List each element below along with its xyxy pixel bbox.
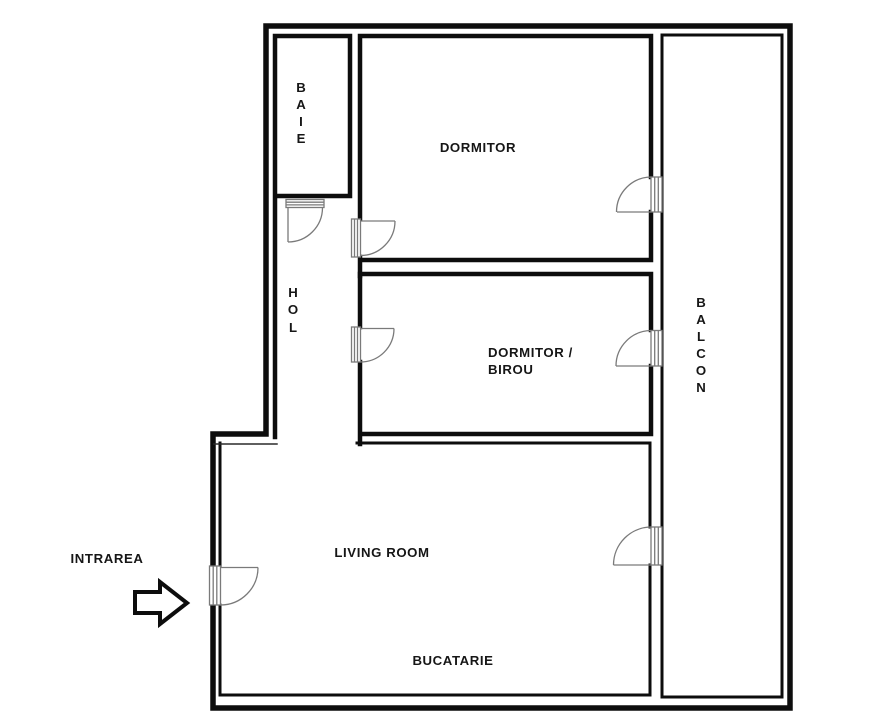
door-jamb xyxy=(651,331,662,367)
balcon-letter: O xyxy=(696,363,706,378)
door-entrance xyxy=(210,566,259,605)
balcon-letter: C xyxy=(696,346,706,361)
door-birou-balcon xyxy=(616,331,662,367)
baie-letter: B xyxy=(296,80,306,95)
door-jamb xyxy=(352,327,361,362)
door-swing-arc xyxy=(288,208,323,243)
door-hol-dormitor xyxy=(352,219,396,257)
wall-dormitor xyxy=(360,36,651,276)
balcon-letter: L xyxy=(697,329,705,344)
room-label-dormitor-birou: DORMITOR / BIROU xyxy=(488,345,573,377)
balcon-letter: N xyxy=(696,380,706,395)
door-jamb xyxy=(352,219,361,257)
room-label-balcon: B A L C O N xyxy=(696,295,706,395)
door-swing-arc xyxy=(617,177,652,212)
baie-letter: A xyxy=(296,97,306,112)
hol-letter: O xyxy=(288,302,298,317)
door-swing-arc xyxy=(614,527,652,565)
door-hol-birou xyxy=(352,327,395,362)
door-jamb xyxy=(286,200,324,208)
balcon-letter: A xyxy=(696,312,706,327)
floor-plan-drawing: B A I E DORMITOR H O L DORMITOR / BIROU … xyxy=(0,0,885,720)
door-swing-arc xyxy=(221,568,259,606)
room-label-baie: B A I E xyxy=(296,80,306,146)
door-baie-hol xyxy=(286,200,324,243)
balcon-letter: B xyxy=(696,295,706,310)
entrance-arrow-icon xyxy=(135,582,187,624)
door-swing-arc xyxy=(361,221,396,256)
hol-letter: H xyxy=(288,285,298,300)
door-jamb xyxy=(651,177,662,212)
door-jamb xyxy=(210,566,221,605)
door-swing-arc xyxy=(361,329,395,363)
room-label-dormitor: DORMITOR xyxy=(440,140,516,155)
baie-letter: I xyxy=(299,114,303,129)
door-living-balcon xyxy=(614,527,663,565)
entrance-label: INTRAREA xyxy=(71,551,144,566)
baie-letter: E xyxy=(297,131,306,146)
room-label-bucatarie: BUCATARIE xyxy=(412,653,493,668)
dormitor-birou-line2: BIROU xyxy=(488,362,534,377)
door-swing-arc xyxy=(616,331,652,367)
wall-baie xyxy=(275,36,350,437)
room-label-living: LIVING ROOM xyxy=(334,545,429,560)
floor-plan-page: B A I E DORMITOR H O L DORMITOR / BIROU … xyxy=(0,0,885,720)
door-dormitor-balcon xyxy=(617,177,663,212)
hol-letter: L xyxy=(289,320,297,335)
dormitor-birou-line1: DORMITOR / xyxy=(488,345,573,360)
wall-balcon xyxy=(662,35,782,697)
room-label-hol: H O L xyxy=(288,285,298,335)
door-jamb xyxy=(651,527,662,565)
